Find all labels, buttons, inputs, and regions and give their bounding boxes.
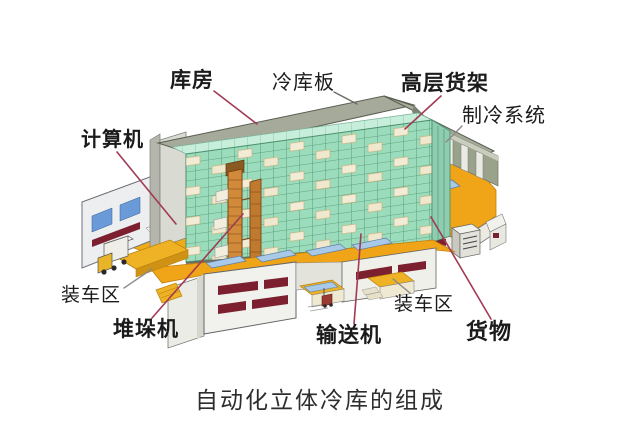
label-zhilengxitong: 制冷系统 <box>462 106 546 127</box>
label-kufang: 库房 <box>170 70 214 92</box>
warehouse-illustration <box>0 0 640 440</box>
lengkuban-leader-line <box>334 92 357 104</box>
label-huowu: 货物 <box>466 320 512 343</box>
diagram-canvas: 库房 冷库板 高层货架 制冷系统 计算机 装车区 堆垛机 输送机 装车区 货物 … <box>0 0 640 440</box>
diagram-title: 自动化立体冷库的组成 <box>0 381 640 415</box>
label-gaocenghuojia: 高层货架 <box>401 73 489 95</box>
label-duiduoji: 堆垛机 <box>113 319 179 341</box>
label-shusongji: 输送机 <box>316 325 382 347</box>
label-jisuanji: 计算机 <box>81 130 144 151</box>
label-lengkuban: 冷库板 <box>272 73 335 94</box>
label-zhuangchequ-left: 装车区 <box>61 286 121 306</box>
kufang-leader-line <box>214 91 257 124</box>
refrigeration-unit <box>452 224 480 258</box>
label-zhuangchequ-right: 装车区 <box>394 295 454 315</box>
conveyor-dock-center <box>300 280 344 311</box>
